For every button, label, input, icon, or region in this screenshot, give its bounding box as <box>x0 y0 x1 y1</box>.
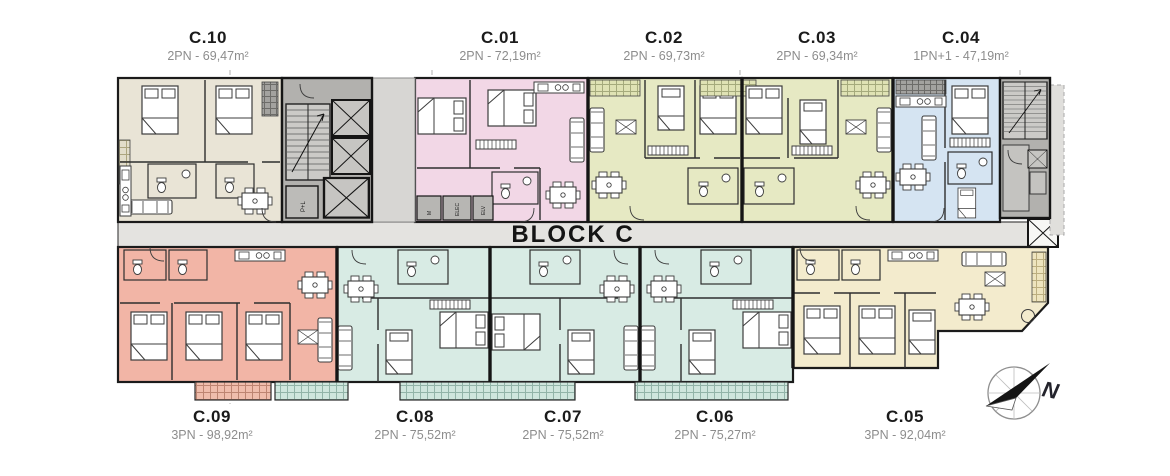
wardrobe-glyph <box>792 146 832 155</box>
kitchen-counter-glyph <box>896 96 946 107</box>
stairs-glyph <box>286 104 330 180</box>
unit-c02-region[interactable] <box>588 78 742 222</box>
core-vestibule <box>1003 145 1029 211</box>
unit-name: C.09 <box>171 407 252 426</box>
toilet-glyph <box>699 182 708 197</box>
bed-glyph <box>246 312 282 360</box>
toilet-glyph <box>225 178 234 193</box>
unit-c09-region[interactable] <box>118 247 337 382</box>
sink-glyph <box>734 256 742 264</box>
unit-spec: 2PN - 69,47m² <box>167 49 248 64</box>
compass-icon: N <box>986 363 1062 419</box>
kitchen-counter-glyph <box>534 82 584 93</box>
unit-c01-region[interactable]: M ELEC ELV <box>415 78 588 222</box>
unit-name: C.01 <box>459 28 540 47</box>
bed-glyph <box>800 100 826 144</box>
wardrobe-glyph <box>733 300 773 309</box>
bed-glyph <box>216 86 252 134</box>
unit-label-c01: C.01 2PN - 72,19m² <box>459 28 540 64</box>
rug-glyph <box>616 120 636 134</box>
kitchen-counter-glyph <box>120 166 131 216</box>
bed-glyph <box>859 306 895 354</box>
unit-label-c04: C.04 1PN+1 - 47,19m² <box>913 28 1009 64</box>
unit-c06-region[interactable] <box>640 247 793 382</box>
stair-elevator-core-right <box>1000 78 1064 235</box>
wardrobe-glyph <box>430 300 470 309</box>
bed-glyph <box>142 86 178 134</box>
sofa-glyph <box>128 200 172 214</box>
stairs-glyph <box>1003 82 1047 139</box>
balcony <box>1032 252 1046 302</box>
balcony <box>275 382 348 400</box>
elevator-glyph <box>332 100 370 136</box>
rug-glyph <box>846 120 866 134</box>
sofa-glyph <box>318 318 332 362</box>
unit-spec: 2PN - 75,27m² <box>674 428 755 443</box>
sofa-glyph <box>962 252 1006 266</box>
kitchen-counter-glyph <box>235 250 285 261</box>
toilet-glyph <box>178 260 187 275</box>
toilet-glyph <box>157 178 166 193</box>
balcony <box>400 382 575 400</box>
unit-c10-region[interactable] <box>118 78 282 222</box>
unit-c05-region[interactable] <box>793 247 1048 368</box>
core-pl-label: P+L <box>301 200 307 212</box>
bed-glyph <box>746 86 782 134</box>
compass-north-label: N <box>1040 376 1062 404</box>
wardrobe-glyph <box>648 146 688 155</box>
core-shaft <box>1030 172 1046 194</box>
toilet-glyph <box>851 260 860 275</box>
balcony <box>590 80 640 96</box>
toilet-glyph <box>133 260 142 275</box>
toilet-glyph <box>806 260 815 275</box>
unit-c07-region[interactable] <box>490 247 640 382</box>
core-service-zone <box>1050 85 1064 235</box>
unit-name: C.07 <box>522 407 603 426</box>
wardrobe-glyph <box>476 140 516 149</box>
floorplan-page: M ELEC ELV <box>0 0 1170 476</box>
bed-glyph <box>658 86 684 130</box>
unit-name: C.02 <box>623 28 704 47</box>
sink-glyph <box>182 170 190 178</box>
sofa-glyph <box>877 108 891 152</box>
bed-glyph <box>952 86 988 134</box>
balcony <box>841 80 889 96</box>
unit-name: C.03 <box>776 28 857 47</box>
unit-spec: 2PN - 75,52m² <box>374 428 455 443</box>
bed-glyph <box>186 312 222 360</box>
unit-spec: 3PN - 98,92m² <box>171 428 252 443</box>
service-room-m <box>417 196 441 220</box>
unit-label-c06: C.06 2PN - 75,27m² <box>674 407 755 443</box>
sofa-glyph <box>624 326 638 370</box>
bed-glyph <box>568 330 594 374</box>
sink-glyph <box>431 256 439 264</box>
service-room-m-label: M <box>427 211 433 215</box>
unit-label-c07: C.07 2PN - 75,52m² <box>522 407 603 443</box>
sink-glyph <box>778 174 786 182</box>
unit-c08-region[interactable] <box>337 247 490 382</box>
service-room-elec-label: ELEC <box>455 203 461 216</box>
sink-glyph <box>523 177 531 185</box>
stair-elevator-core-left: P+L <box>282 78 415 222</box>
service-room-elv-label: ELV <box>481 205 487 215</box>
wardrobe-band <box>896 80 946 94</box>
sofa-glyph <box>641 326 655 370</box>
elevator-glyph <box>1028 150 1047 168</box>
unit-label-c10: C.10 2PN - 69,47m² <box>167 28 248 64</box>
unit-label-c03: C.03 2PN - 69,34m² <box>776 28 857 64</box>
bed-glyph <box>909 310 935 354</box>
rug-glyph <box>298 330 318 344</box>
sofa-glyph <box>570 118 584 162</box>
wardrobe-glyph <box>950 138 990 147</box>
block-title: BLOCK C <box>118 222 1028 247</box>
sofa-glyph <box>590 108 604 152</box>
toilet-glyph <box>539 262 548 277</box>
unit-label-c02: C.02 2PN - 69,73m² <box>623 28 704 64</box>
balcony <box>635 382 788 400</box>
bed-glyph <box>440 312 488 348</box>
elevator-glyph <box>332 138 370 174</box>
toilet-glyph <box>407 262 416 277</box>
sink-glyph <box>722 174 730 182</box>
unit-name: C.06 <box>674 407 755 426</box>
bed-glyph <box>492 314 540 350</box>
unit-name: C.08 <box>374 407 455 426</box>
elevator-glyph <box>324 178 369 218</box>
unit-name: C.10 <box>167 28 248 47</box>
unit-label-c08: C.08 2PN - 75,52m² <box>374 407 455 443</box>
bed-glyph <box>804 306 840 354</box>
unit-name: C.05 <box>864 407 945 426</box>
unit-spec: 2PN - 75,52m² <box>522 428 603 443</box>
unit-spec: 2PN - 72,19m² <box>459 49 540 64</box>
toilet-glyph <box>957 164 966 179</box>
bed-glyph <box>743 312 791 348</box>
unit-spec: 1PN+1 - 47,19m² <box>913 49 1009 64</box>
unit-label-c09: C.09 3PN - 98,92m² <box>171 407 252 443</box>
toilet-glyph <box>501 184 510 199</box>
bed-glyph <box>488 90 536 126</box>
bed-glyph <box>386 330 412 374</box>
core-service-zone <box>372 78 415 222</box>
balcony-strips <box>195 382 788 400</box>
toilet-glyph <box>755 182 764 197</box>
bed-glyph <box>689 330 715 374</box>
rug-glyph <box>985 272 1005 286</box>
unit-label-c05: C.05 3PN - 92,04m² <box>864 407 945 443</box>
sofa-glyph <box>338 326 352 370</box>
kitchen-counter-glyph <box>888 250 938 261</box>
sink-glyph <box>563 256 571 264</box>
unit-spec: 2PN - 69,34m² <box>776 49 857 64</box>
unit-spec: 2PN - 69,73m² <box>623 49 704 64</box>
wardrobe-band <box>262 82 278 116</box>
unit-name: C.04 <box>913 28 1009 47</box>
bed-glyph <box>131 312 167 360</box>
bed-glyph <box>418 98 466 134</box>
toilet-glyph <box>710 262 719 277</box>
unit-spec: 3PN - 92,04m² <box>864 428 945 443</box>
sofa-glyph <box>922 116 936 160</box>
sink-glyph <box>979 158 987 166</box>
bed-glyph <box>958 188 976 218</box>
unit-c04-region[interactable] <box>893 78 1000 222</box>
balcony <box>195 382 271 400</box>
